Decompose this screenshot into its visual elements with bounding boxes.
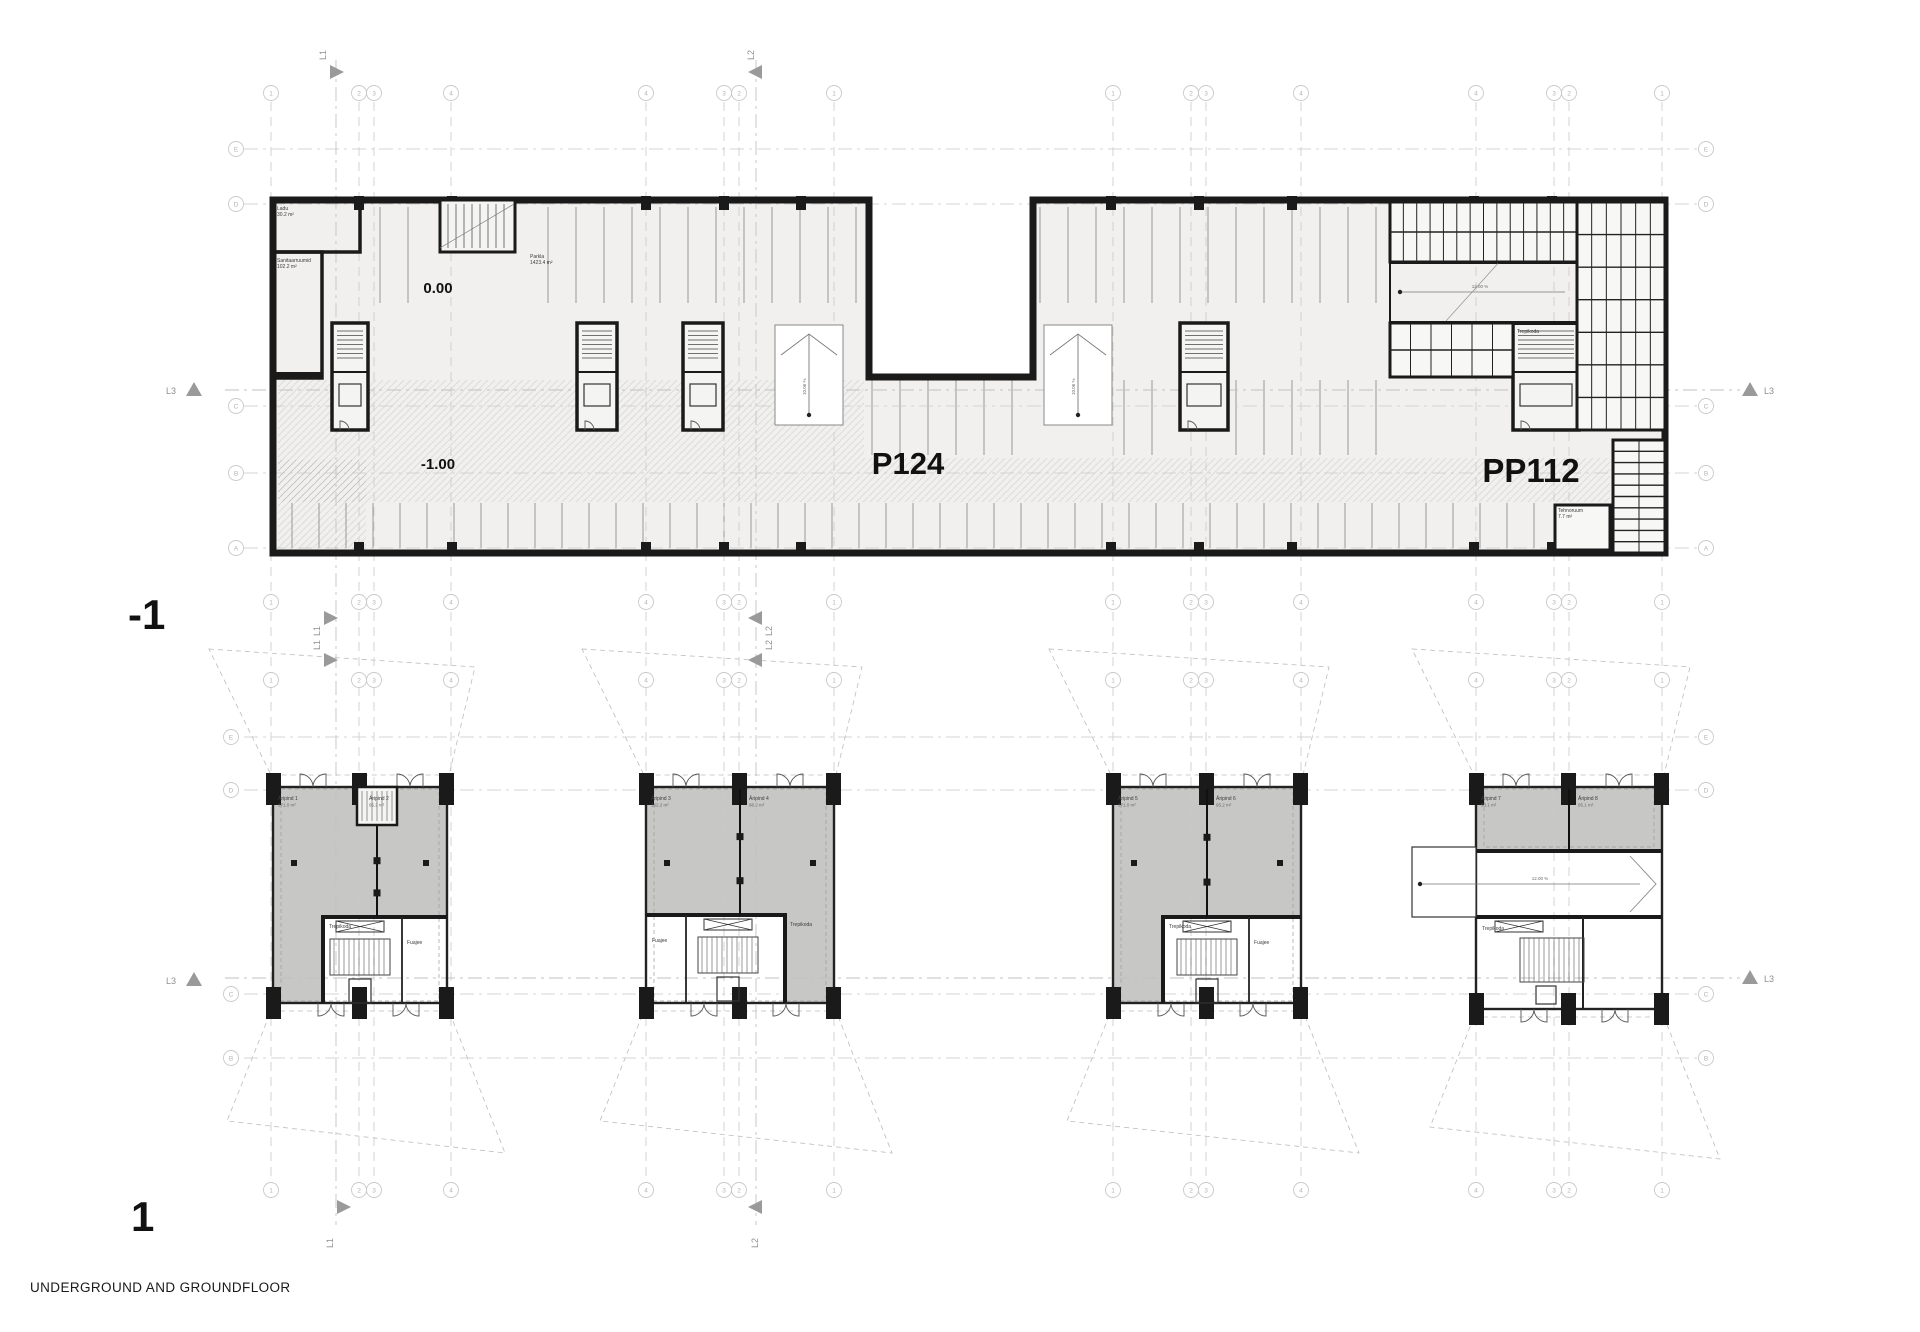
grid-bubble-label: C [1704,403,1709,410]
grid-bubble-label: 4 [1299,1187,1303,1194]
grid-bubble-label: 3 [1552,1187,1556,1194]
lower-floor-projection [1067,1011,1359,1153]
door-swing [1158,1003,1184,1016]
section-arrow [1742,970,1758,984]
grid-bubble-label: E [234,146,239,153]
grid-bubble-label: 3 [1552,90,1556,97]
facade-pier [826,987,841,1019]
door-swing [777,774,803,787]
door-swing [673,774,699,787]
section-marker-label: L2 [750,1238,760,1248]
ramp-slope-label: 10.06 % [1071,378,1076,395]
section-arrow [748,1200,762,1214]
section-arrow [748,653,762,667]
cluster-wall [273,372,322,378]
ramp-start-dot [1398,290,1402,294]
grid-bubble-label: 2 [737,677,741,684]
section-marker-label: L3 [166,976,176,986]
facade-pier [1654,993,1669,1025]
section-arrow [1742,382,1758,396]
door-swing [393,1003,419,1016]
section-marker-label: L3 [166,386,176,396]
grid-bubble-label: C [234,403,239,410]
room-label: 30.2 m² [277,212,294,218]
unit-label: Äripind 7 [1481,795,1501,802]
lift-shaft [1536,986,1556,1004]
unit-label: Äripind 6 [1216,795,1236,802]
grid-bubble-label: 4 [1299,599,1303,606]
grid-bubble-label: 4 [1299,677,1303,684]
ramp-start-dot [1418,882,1422,886]
grid-bubble-label: 3 [372,90,376,97]
grid-bubble-label: A [234,545,239,552]
grid-bubble-label: D [234,201,239,208]
room-label: Fuajee [1254,940,1270,946]
grid-bubble-label: 1 [1660,90,1664,97]
upper-floor-projection [1049,649,1329,775]
grid-bubble-label: 4 [449,677,453,684]
column-marker [664,860,670,866]
upper-floor-projection [582,649,862,775]
ramp-slope-label: 10.06 % [802,378,807,395]
room-label: Trepikoda [1517,329,1539,335]
column-marker [810,860,816,866]
wall-pier [1287,542,1297,556]
room-label: Trepikoda [790,922,812,928]
room-label: 1423.4 m² [530,260,553,266]
section-marker-label: L3 [1764,386,1774,396]
sheet-caption: UNDERGROUND AND GROUNDFLOOR [30,1280,291,1295]
door-swing [300,774,326,787]
grid-bubble-label: 1 [832,1187,836,1194]
column-marker [737,877,744,884]
unit-area-label: 95.1 m² [1578,803,1594,808]
column-marker [374,889,381,896]
garage-stair-core [683,323,723,430]
facade-pier [1106,987,1121,1019]
grid-bubble-label: 1 [1660,599,1664,606]
section-arrow [330,65,344,79]
grid-bubble-label: 2 [1189,677,1193,684]
floorplan-canvas: 1234432112344321123443211234432112344321… [0,0,1920,1332]
grid-bubble-label: 4 [644,677,648,684]
wall-pier [354,542,364,556]
facade-pier [826,773,841,805]
grid-bubble-label: 2 [1567,90,1571,97]
lower-floor-projection [1430,1017,1720,1159]
garage-stair-core [332,323,368,430]
unit-area-label: 95.2 m² [1216,803,1232,808]
grid-bubble-label: 4 [449,90,453,97]
column-marker [1204,879,1211,886]
grid-bubble-label: B [1704,1055,1708,1062]
wall-pier [1194,542,1204,556]
section-arrow [748,611,762,625]
grid-bubble-label: B [1704,470,1708,477]
section-marker-label: L1 [312,626,322,636]
level-label-ground: 1 [131,1193,154,1240]
wall-pier [1469,542,1479,556]
wall-pier [1106,196,1116,210]
facade-pier [266,987,281,1019]
grid-bubble-label: 4 [1474,90,1478,97]
wall-pier [796,196,806,210]
column-marker [737,833,744,840]
upper-floor-projection [1412,649,1690,775]
grid-bubble-label: 2 [357,90,361,97]
grid-bubble-label: 3 [1204,599,1208,606]
grid-bubble-label: 2 [1189,1187,1193,1194]
grid-bubble-label: 4 [1474,677,1478,684]
unit-label: Äripind 3 [651,795,671,802]
door-swing [1521,1009,1547,1022]
lower-floor-projection [227,1011,505,1153]
door-swing [1240,1003,1266,1016]
ramp-apron [1412,847,1476,917]
column-marker [1204,834,1211,841]
room-label: Trepikoda [1482,926,1504,932]
grid-bubble-label: 3 [372,677,376,684]
garage-stair-core [1180,323,1228,430]
room-label: 102.2 m² [277,264,297,270]
grid-bubble-label: C [1704,991,1709,998]
grid-bubble-label: 4 [449,1187,453,1194]
wall-pier [796,542,806,556]
grid-bubble-label: 4 [1299,90,1303,97]
unit-label: Äripind 5 [1118,795,1138,802]
wall-pier [641,196,651,210]
room-label: Trepikoda [329,924,351,930]
section-marker-label: L3 [1764,974,1774,984]
section-marker-label: L2 [764,626,774,636]
grid-bubble-label: 2 [737,599,741,606]
sheet-annotations: -1 1 UNDERGROUND AND GROUNDFLOOR [30,591,291,1295]
wall-pier [641,542,651,556]
facade-pier [639,987,654,1019]
grid-bubble-label: E [229,734,234,741]
facade-pier [439,987,454,1019]
grid-bubble-label: 1 [1111,599,1115,606]
grid-bubble-label: 3 [722,90,726,97]
grid-bubble-label: 3 [1204,677,1208,684]
garage-stair-core [1513,323,1579,430]
grid-bubble-label: 2 [737,90,741,97]
grid-bubble-label: 3 [1552,599,1556,606]
parking-capacity-secondary: PP112 [1482,452,1579,489]
grid-bubble-label: 2 [1189,90,1193,97]
grid-bubble-label: 1 [1111,90,1115,97]
column-marker [1277,860,1283,866]
unit-label: Äripind 4 [749,795,769,802]
column-marker [423,860,429,866]
lower-floor-projection [600,1011,892,1153]
grid-bubble-label: 4 [644,599,648,606]
facade-pier [1561,993,1576,1025]
grid-bubble-label: 3 [722,677,726,684]
upper-floor-projection [209,649,475,775]
door-swing [318,1003,344,1016]
stair-run [1520,938,1584,982]
grid-bubble-label: 2 [1567,677,1571,684]
grid-bubble-label: 1 [1660,1187,1664,1194]
section-arrow [186,382,202,396]
grid-bubble-label: D [229,787,234,794]
grid-bubble-label: 2 [1189,599,1193,606]
grid-bubble-label: 2 [357,677,361,684]
grid-bubble-label: 2 [1567,1187,1571,1194]
room-label: Trepikoda [1169,924,1191,930]
grid-bubble-label: 1 [832,90,836,97]
grid-bubble-label: 1 [269,599,273,606]
facade-pier [1293,987,1308,1019]
room-label: Fuajee [407,940,423,946]
grid-bubble-label: 4 [449,599,453,606]
grid-bubble-label: 3 [1204,1187,1208,1194]
grid-bubble-label: 2 [737,1187,741,1194]
unit-area-label: 95.2 m² [369,803,385,808]
grid-bubble-label: 1 [269,1187,273,1194]
drawing-sheet: 1234432112344321123443211234432112344321… [0,0,1920,1332]
level-label-underground: -1 [128,591,165,638]
grid-bubble-label: 3 [372,1187,376,1194]
room-label: Fuajee [652,938,668,944]
door-swing [397,774,423,787]
grid-bubble-label: 3 [1204,90,1208,97]
core-wall [646,915,785,1003]
elevation-upper-label: 0.00 [423,280,452,297]
section-arrow [337,1200,351,1214]
door-swing [1503,774,1529,787]
door-swing [1602,1009,1628,1022]
section-marker-label: L2 [746,50,756,60]
grid-bubble-label: B [229,1055,233,1062]
wall-pier [719,542,729,556]
facade-pier [439,773,454,805]
ramp-start-dot [807,413,811,417]
room-label: 7.7 m² [1558,514,1573,520]
grid-bubble-label: 1 [1111,677,1115,684]
ramp-start-dot [1076,413,1080,417]
grid-bubble-label: E [1704,734,1709,741]
wall-pier [1194,196,1204,210]
facade-pier [1293,773,1308,805]
grid-bubble-label: 1 [269,677,273,684]
door-swing [1140,774,1166,787]
grid-bubble-label: 4 [644,90,648,97]
wall-pier [1287,196,1297,210]
wall-pier [1106,542,1116,556]
grid-bubble-label: 3 [722,599,726,606]
grid-bubble-label: 1 [1660,677,1664,684]
parking-capacity-main: P124 [872,446,945,481]
unit-area-label: 171.0 m² [278,803,296,808]
unit-label: Äripind 2 [369,795,389,802]
door-swing [1606,774,1632,787]
section-marker-label: L2 [764,640,774,650]
section-marker-label: L1 [318,50,328,60]
grid-bubble-label: 1 [832,599,836,606]
wall-pier [447,542,457,556]
section-arrow [186,972,202,986]
column-marker [1131,860,1137,866]
facade-pier [1654,773,1669,805]
column-marker [291,860,297,866]
unit-area-label: 93.1 m² [1481,803,1497,808]
grid-bubble-label: 3 [722,1187,726,1194]
door-swing [773,1003,799,1016]
grid-bubble-label: 4 [1474,599,1478,606]
ramp-slope-label: 12.00 % [1472,284,1489,289]
grid-bubble-label: A [1704,545,1709,552]
grid-bubble-label: 3 [1552,677,1556,684]
grid-bubble-label: 4 [1474,1187,1478,1194]
ramp-slope-label: 12.00 % [1532,876,1549,881]
grid-bubble-label: 2 [357,599,361,606]
unit-label: Äripind 1 [278,795,298,802]
door-swing [691,1003,717,1016]
grid-bubble-label: 2 [357,1187,361,1194]
unit-area-label: 171.0 m² [1118,803,1136,808]
grid-bubble-label: C [229,991,234,998]
section-marker-label: L1 [325,1238,335,1248]
section-arrow [748,65,762,79]
grid-bubble-label: 4 [644,1187,648,1194]
grid-bubble-label: 1 [269,90,273,97]
grid-bubble-label: 3 [372,599,376,606]
unit-area-label: 162.2 m² [651,803,669,808]
grid-bubble-label: 1 [832,677,836,684]
grid-bubble-label: 1 [1111,1187,1115,1194]
unit-label: Äripind 8 [1578,795,1598,802]
section-marker-label: L1 [312,640,322,650]
grid-bubble-label: E [1704,146,1709,153]
facade-pier [1469,993,1484,1025]
grid-bubble-label: B [234,470,238,477]
grid-bubble-label: D [1704,201,1709,208]
grid-bubble-label: D [1704,787,1709,794]
garage-stair-core [577,323,617,430]
elevation-lower-label: -1.00 [421,456,455,473]
grid-bubble-label: 2 [1567,599,1571,606]
unit-area-label: 98.2 m² [749,803,765,808]
door-swing [1244,774,1270,787]
wall-pier [719,196,729,210]
column-marker [374,857,381,864]
